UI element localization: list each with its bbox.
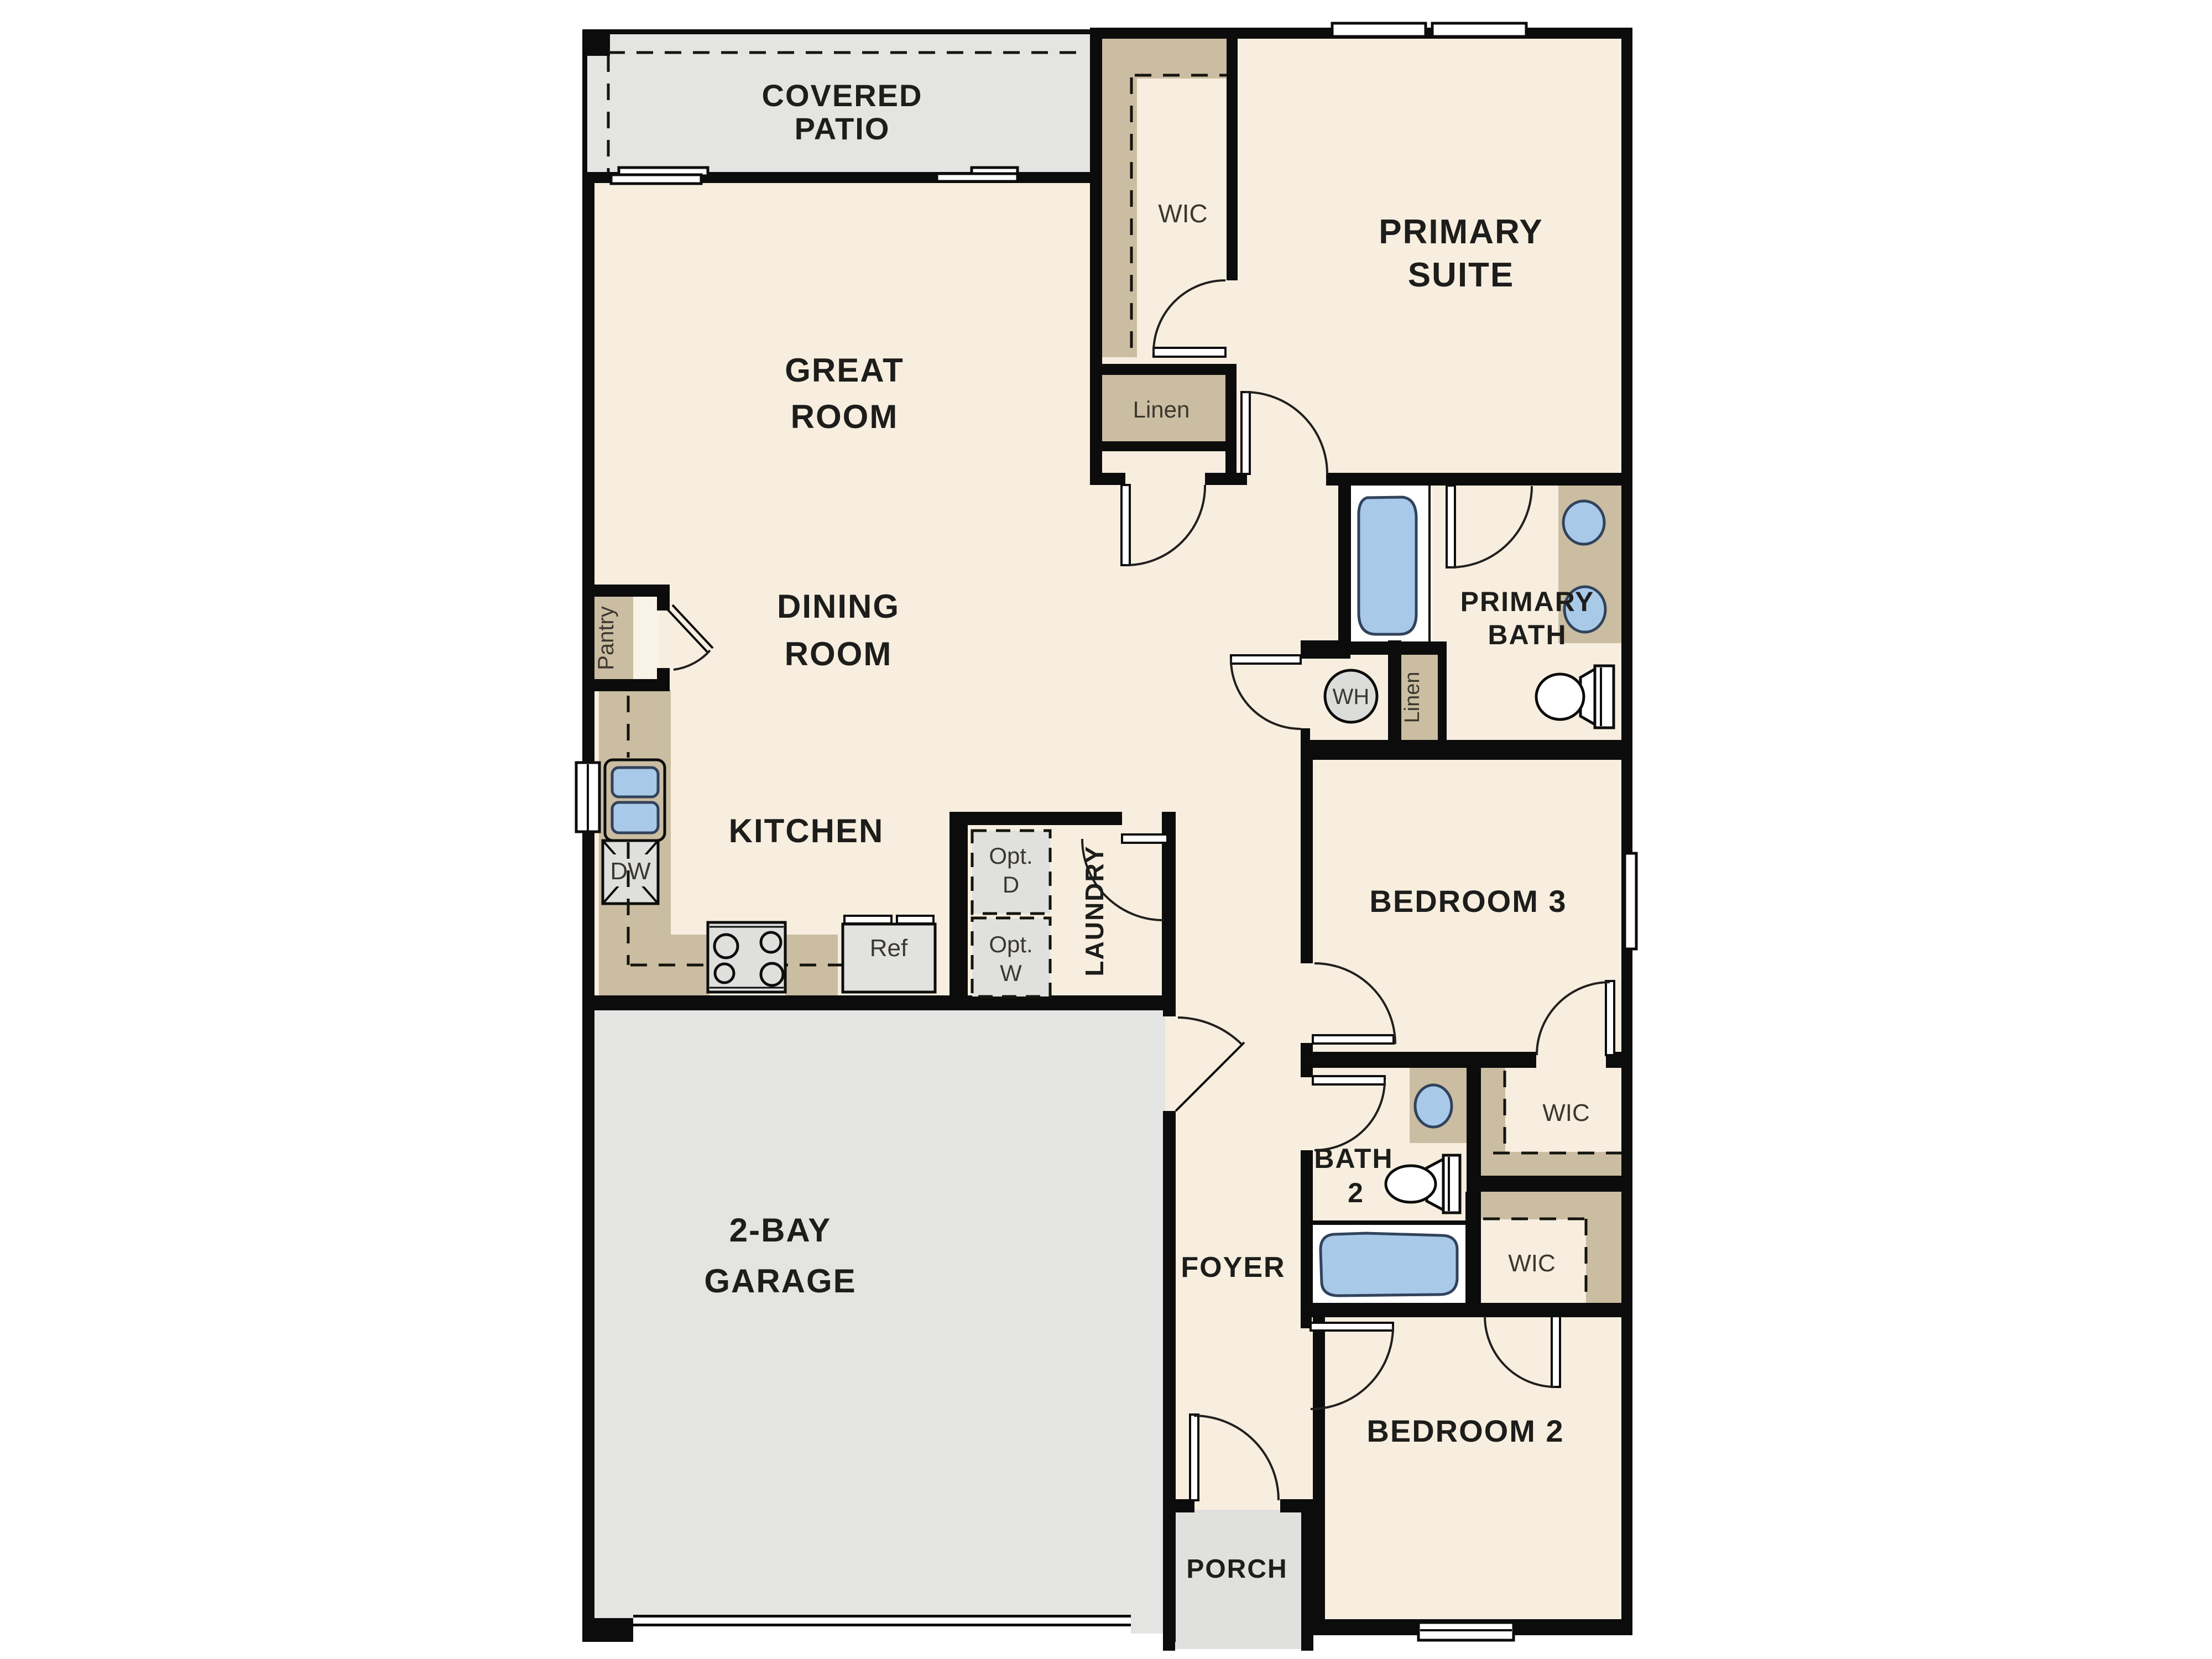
svg-text:BEDROOM 3: BEDROOM 3	[1369, 884, 1567, 919]
svg-text:PRIMARY: PRIMARY	[1460, 586, 1595, 617]
svg-text:WIC: WIC	[1542, 1099, 1590, 1126]
svg-text:DW: DW	[610, 858, 651, 885]
svg-text:DINING: DINING	[777, 588, 900, 625]
svg-text:Pantry: Pantry	[594, 606, 618, 670]
svg-text:WIC: WIC	[1508, 1250, 1556, 1277]
svg-text:KITCHEN: KITCHEN	[729, 812, 884, 849]
svg-text:Opt.: Opt.	[989, 843, 1032, 869]
svg-text:BEDROOM 2: BEDROOM 2	[1366, 1413, 1564, 1448]
svg-text:LAUNDRY: LAUNDRY	[1080, 845, 1109, 976]
svg-text:Linen: Linen	[1133, 397, 1190, 422]
svg-text:ROOM: ROOM	[785, 635, 893, 672]
svg-text:Ref: Ref	[870, 935, 908, 962]
svg-text:SUITE: SUITE	[1408, 256, 1515, 294]
svg-text:ROOM: ROOM	[791, 398, 899, 435]
svg-text:D: D	[1003, 872, 1019, 898]
svg-text:BATH: BATH	[1314, 1143, 1393, 1174]
svg-text:COVERED: COVERED	[762, 78, 923, 113]
svg-text:FOYER: FOYER	[1181, 1251, 1285, 1284]
svg-text:GARAGE: GARAGE	[704, 1262, 856, 1300]
svg-text:PORCH: PORCH	[1186, 1554, 1287, 1584]
svg-text:GREAT: GREAT	[785, 352, 904, 389]
svg-text:PRIMARY: PRIMARY	[1379, 213, 1543, 251]
svg-text:2: 2	[1348, 1177, 1364, 1208]
svg-text:WIC: WIC	[1158, 199, 1207, 228]
svg-text:2-BAY: 2-BAY	[729, 1212, 832, 1249]
svg-text:Opt.: Opt.	[989, 931, 1032, 957]
svg-text:BATH: BATH	[1488, 619, 1567, 650]
svg-text:W: W	[1000, 960, 1022, 986]
svg-text:Linen: Linen	[1401, 672, 1424, 723]
svg-text:WH: WH	[1333, 685, 1370, 709]
svg-text:PATIO: PATIO	[795, 111, 890, 146]
